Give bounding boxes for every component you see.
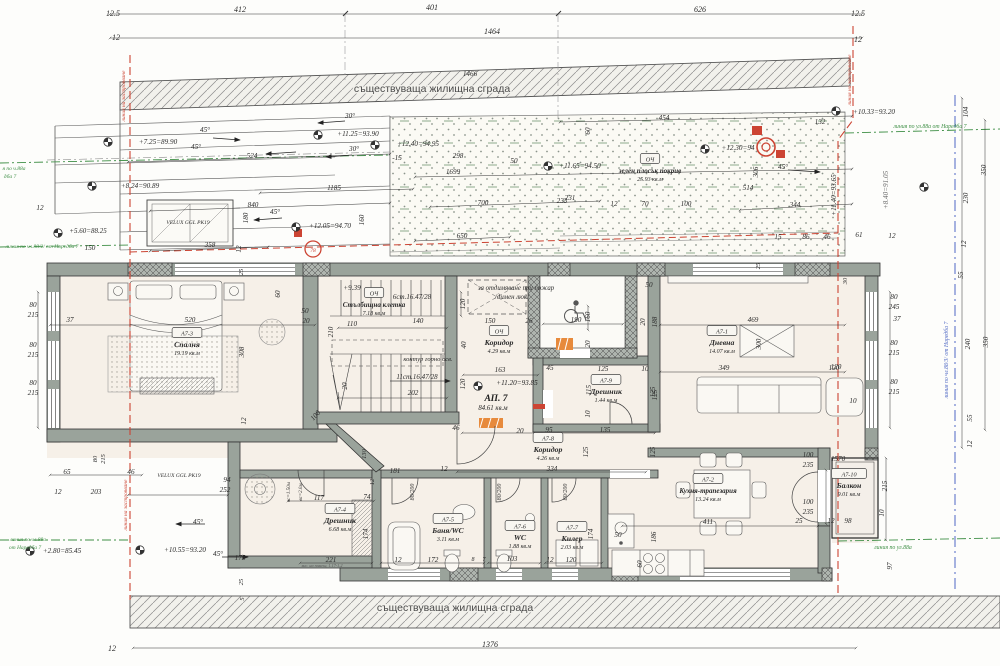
existing-building-bottom-label: съществуваща жилищна сграда	[377, 602, 533, 614]
dim-label: 175	[235, 554, 246, 562]
dim-label: 30°	[344, 112, 355, 120]
regulation-line-label: дба 7	[4, 173, 17, 180]
room-label-А7-1: А7-1Дневна14.07 кв.м	[707, 326, 737, 356]
dim-label: 80	[890, 339, 898, 347]
dim-label: 25	[795, 517, 803, 525]
dim-label: 350	[980, 164, 988, 176]
room-area: 7.18 кв.м	[363, 311, 386, 317]
dim-label: 25	[238, 268, 245, 275]
apartment-area: 84.61 кв.м	[478, 405, 508, 412]
room-tag: А7-10	[840, 472, 857, 479]
dim-label: 215	[889, 349, 900, 357]
dim-label: 80	[890, 293, 898, 301]
dim-label: 1185	[327, 184, 341, 192]
dim-label: +9.39	[343, 284, 361, 292]
dim-label: 10	[584, 410, 592, 418]
dim-label: 60	[636, 560, 644, 568]
dim-label: 125	[598, 365, 609, 373]
dim-label: 215	[889, 388, 900, 396]
room-area: 25.93 кв.м	[637, 177, 663, 183]
dim-label: 10	[849, 397, 857, 405]
dim-label: 12	[546, 556, 554, 564]
plan-svg: съществуваща жилищна сграда съществуваща…	[0, 0, 1000, 666]
dim-label: 80/200	[497, 484, 503, 501]
room-name: WC	[514, 533, 527, 542]
dim-label: 1464	[484, 27, 500, 36]
dim-label: 514	[743, 184, 754, 192]
dim-label: 308	[238, 346, 246, 358]
dim-label: 181	[390, 467, 401, 475]
dim-label: 55	[957, 271, 965, 279]
dim-label: 15	[774, 233, 782, 241]
level-marker-icon	[371, 141, 379, 149]
level-marker-icon	[54, 229, 62, 237]
dim-label: 12	[235, 245, 243, 253]
regulation-line-label: линия по чл.88/2/ от Наредба 7	[5, 243, 79, 250]
dim-label: 80	[29, 301, 37, 309]
dim-label: +2.80=85.45	[43, 547, 82, 555]
regulation-line-label: я по ч.88а	[1, 166, 25, 172]
dim-label: 203	[91, 488, 102, 496]
dim-label: 50	[510, 157, 518, 165]
dim-label: 40	[460, 341, 468, 349]
dim-label: 186	[650, 531, 658, 542]
dim-label: 110	[347, 320, 358, 328]
dim-label: 45°	[193, 518, 203, 526]
dim-label: 215	[100, 453, 107, 464]
room-area: 14.07 кв.м	[709, 348, 735, 355]
dim-label: 350	[982, 336, 990, 348]
dim-label: 215	[28, 311, 39, 319]
room-area: 1.88 кв.м	[509, 544, 532, 550]
dim-label: 125	[649, 386, 657, 397]
dim-label: 30°	[348, 145, 359, 153]
dim-label: 12	[240, 417, 248, 425]
dim-label: 1376	[482, 640, 498, 649]
room-tag: ОЧ	[646, 157, 655, 164]
dim-label: +11.25=93.90	[337, 130, 379, 138]
dim-label: 344	[789, 201, 801, 209]
dim-label: 230	[962, 192, 970, 203]
room-name: Стълбищна клетка	[343, 301, 406, 309]
skylight-label: VELUX GGL PK19	[157, 473, 201, 479]
dim-label: 50	[301, 307, 309, 315]
dim-label: вис. на помещ. 1.17-1.2	[302, 563, 343, 568]
room-area: 2.03 кв.м	[561, 545, 584, 551]
dim-label: 240	[964, 338, 972, 349]
room-name: Килер	[561, 534, 583, 543]
dim-label: 74	[363, 493, 371, 501]
dim-label: 150	[485, 317, 496, 325]
dim-label: 80	[92, 455, 99, 462]
room-label-А7-3: А7-3Спалня19.19 кв.м	[172, 328, 202, 358]
dim-label: +5.60=88.25	[69, 227, 107, 235]
room-tag: А7-6	[513, 524, 527, 531]
room-tag: А7-5	[441, 517, 454, 524]
dim-label: 20	[639, 318, 647, 326]
room-name: Спалня	[174, 340, 200, 349]
dim-label: 188	[651, 316, 659, 327]
level-marker-icon	[474, 382, 482, 390]
elevator-shaft-wall	[625, 276, 637, 358]
regulation-line-label: линия по чл.88а	[9, 537, 46, 543]
dim-label: 46	[823, 233, 831, 241]
dim-label: 840	[248, 201, 259, 209]
dim-label: 12	[960, 240, 968, 248]
room-tag: А7-3	[180, 331, 193, 338]
room-label-А7-8: А7-8Коридор4.26 кв.м	[533, 433, 563, 463]
dim-label: 50	[645, 281, 653, 289]
dim-label: 46	[452, 424, 460, 432]
dim-label: вс=2.0м	[299, 483, 304, 501]
dim-label: 60	[584, 127, 592, 135]
room-tag: А7-8	[541, 436, 555, 443]
dim-label: 12.5	[851, 9, 865, 18]
room-tag: А7-9	[599, 378, 612, 385]
room-label-А7-7: А7-7Килер2.03 кв.м	[557, 522, 587, 552]
dim-label: 215	[28, 351, 39, 359]
dim-label: 12	[610, 200, 618, 208]
dim-label: 1466	[463, 70, 478, 78]
dim-label: 172	[428, 556, 439, 564]
dim-label: 163	[495, 366, 506, 374]
dim-label: 100	[803, 498, 814, 506]
regulation-line-label: линия по ул.88а	[873, 545, 912, 551]
dim-label: 60	[274, 290, 282, 298]
dim-label: 12	[394, 556, 402, 564]
dim-label: 120	[829, 364, 840, 372]
room-name: Дневна	[709, 338, 735, 347]
room-area: 19.19 кв.м	[174, 351, 200, 357]
level-marker-icon	[314, 131, 322, 139]
room-area: 9.01 кв.м	[838, 492, 861, 498]
dim-label: 401	[426, 3, 438, 12]
dim-label: 100	[681, 200, 692, 208]
dim-label: 454	[659, 114, 670, 122]
room-tag: А7-2	[701, 477, 714, 484]
dim-label: 120	[459, 298, 467, 309]
dim-label: 37	[65, 316, 74, 324]
room-name: Дрешник	[589, 387, 623, 396]
apartment-label: АП. 7	[484, 394, 509, 404]
dim-label: 46	[127, 468, 135, 476]
dim-label: 120	[566, 556, 577, 564]
dim-label: 12	[108, 644, 116, 653]
dim-label: 117	[314, 494, 325, 502]
dim-label: 174	[587, 528, 595, 539]
dim-label: 45°	[213, 550, 223, 558]
dim-label: 12	[827, 517, 835, 525]
dim-label: 520	[185, 316, 196, 324]
existing-building-top-label: съществуваща жилищна сграда	[354, 83, 510, 95]
dim-label: +12.30=94	[721, 144, 754, 152]
existing-building-bottom	[130, 596, 1000, 628]
dim-label: 298	[453, 152, 464, 160]
dim-label: 12	[854, 35, 862, 44]
level-marker-icon	[292, 223, 300, 231]
dim-label: 469	[748, 316, 759, 324]
building-line-label: линия на застрояване	[847, 54, 853, 107]
dim-label: 45°	[778, 163, 788, 171]
roof-marker-label: 78	[310, 248, 316, 254]
room-area: 1.44 кв.м	[595, 397, 618, 404]
room-name: зелен плосък покрив	[618, 167, 681, 175]
dim-label: 215	[28, 389, 39, 397]
dim-label: 160	[358, 214, 366, 225]
dim-label: 30	[842, 277, 849, 285]
dim-label: 210	[327, 326, 335, 337]
dim-label: контур горно осв.	[403, 356, 453, 363]
dim-label: 94	[223, 476, 231, 484]
dim-label: 50	[614, 531, 622, 539]
dim-label: 150	[85, 244, 96, 252]
dim-label: 1570	[831, 455, 846, 463]
dim-label: вс=1.50м	[287, 481, 292, 501]
dim-label: 12	[440, 465, 448, 473]
dim-label: 103	[507, 555, 518, 563]
dim-label: 20	[302, 317, 310, 325]
dim-label: -15	[392, 154, 402, 162]
dim-label: 98	[844, 517, 852, 525]
dim-label: 12	[888, 232, 896, 240]
dim-label: 45°	[270, 208, 280, 216]
room-tag: ОЧ	[370, 291, 379, 298]
room-tag: ОЧ	[495, 329, 504, 336]
dim-label: 626	[694, 5, 706, 14]
dim-label: 12	[36, 204, 44, 212]
dim-label: 300	[755, 338, 763, 350]
dim-label: 104	[962, 106, 970, 117]
regulation-line-label: линия по чл.88/3/ от Наредба 7	[943, 321, 950, 400]
building-line-label: линия на застрояване	[121, 70, 127, 123]
dim-label: 160	[584, 311, 592, 322]
dim-label: 130	[361, 448, 368, 459]
dim-label: 650	[457, 232, 468, 240]
dim-label: 215	[881, 480, 889, 491]
room-area: 6.68 кв.м	[329, 527, 352, 533]
dim-label: 412	[234, 5, 246, 14]
dim-label: 358	[204, 241, 216, 249]
level-marker-icon	[920, 183, 928, 191]
dim-label: +10.33=93.20	[853, 108, 895, 116]
dim-label: 12	[966, 440, 974, 448]
dim-label: 306	[752, 166, 760, 178]
room-area: 4.26 кв.м	[537, 455, 560, 462]
dim-label: 174	[362, 528, 370, 539]
dim-label: 65	[63, 468, 71, 476]
dim-label: +10.55=93.20	[164, 546, 206, 554]
dim-label: 80	[890, 378, 898, 386]
dim-label: +12.40=94.95	[397, 140, 439, 148]
dim-label: +8.40=91.05	[882, 170, 890, 209]
room-area: 13.24 кв.м	[695, 496, 721, 503]
dim-label: 120	[459, 378, 467, 389]
dim-label: 132	[815, 118, 826, 126]
room-area: 3.11 кв.м	[436, 537, 459, 543]
dim-label: 10	[878, 509, 886, 517]
dim-label: 45°	[200, 126, 210, 134]
dim-label: 20	[516, 427, 524, 435]
dim-label: 12.5	[106, 9, 120, 18]
dim-label: 334	[546, 465, 558, 473]
dim-label: 12	[54, 488, 62, 496]
room-name: Коридор	[533, 445, 563, 454]
dim-label: 26	[525, 317, 533, 325]
dim-label: 20	[584, 340, 592, 348]
dim-label: 12	[369, 478, 376, 485]
skylight-label: VELUX GGL PK19	[166, 220, 210, 226]
dim-label: 411	[703, 518, 713, 526]
dim-label: 80/200	[410, 484, 416, 501]
room-name: Дрешник	[323, 516, 357, 525]
dim-label: 10	[641, 365, 649, 373]
dim-label: 37	[892, 315, 901, 323]
dim-label: 11ст.16.47/28	[396, 373, 438, 381]
level-marker-icon	[544, 162, 552, 170]
apartment-level: +11.20=93.85	[496, 379, 538, 387]
dim-label: 80	[29, 341, 37, 349]
dim-label: 180	[242, 212, 250, 223]
balcony-door-opening	[818, 470, 830, 522]
dim-label: 190	[571, 316, 582, 324]
floor-plan-drawing: съществуваща жилищна сграда съществуваща…	[0, 0, 1000, 666]
dim-label: +11.65=94.50	[559, 162, 601, 170]
dim-label: за отдимяване при пожар	[477, 285, 555, 292]
dim-label: 45°	[191, 143, 201, 151]
armchair	[826, 378, 863, 416]
dim-label: 80/200	[563, 484, 569, 501]
dim-label: 8	[472, 557, 475, 563]
dim-label: +8.24=90.89	[121, 182, 160, 190]
dim-label: 524	[247, 152, 258, 160]
room-area: 4.29 кв.м	[488, 348, 511, 355]
dim-label: 231	[565, 194, 576, 202]
dim-label: 125	[649, 446, 657, 457]
plant	[245, 474, 275, 504]
level-marker-icon	[701, 145, 709, 153]
dim-label: 100	[803, 451, 814, 459]
level-marker-icon	[88, 182, 96, 190]
dim-label: 700	[478, 199, 489, 207]
dim-label: 349	[718, 364, 730, 372]
room-tag: А7-4	[333, 507, 346, 514]
dim-label: +12.05=94.70	[309, 222, 351, 230]
dim-label: 202	[408, 389, 419, 397]
dim-label: 235	[803, 508, 814, 516]
dim-label: 135	[600, 426, 611, 434]
level-marker-icon	[832, 107, 840, 115]
dim-label: /димен люк/	[494, 294, 530, 301]
room-tag: А7-7	[565, 525, 579, 532]
dim-label: 86	[802, 233, 810, 241]
dim-label: 252	[220, 486, 231, 494]
dim-label: 6ст.16.47/28	[393, 293, 432, 301]
room-name: Баня/WC	[431, 526, 464, 535]
regulation-line-label: от Наредба 7	[9, 544, 42, 551]
regulation-line-label: линия по ул.88а от Наредба 7	[892, 123, 967, 130]
dim-label: 245	[889, 303, 900, 311]
dim-label: 1699	[446, 168, 461, 176]
level-marker-icon	[104, 138, 112, 146]
dim-label: 80	[29, 379, 37, 387]
dim-label: +7.25=89.90	[139, 138, 178, 146]
dim-label: 55	[966, 414, 974, 422]
dresser	[140, 378, 214, 394]
dim-label: 140	[413, 317, 424, 325]
room-name: Коридор	[484, 338, 514, 347]
round-rug	[259, 319, 285, 345]
dim-label: 70	[641, 200, 649, 208]
room-name: Балкон	[836, 481, 862, 490]
dim-label: 25	[755, 262, 762, 269]
dim-label: 25	[238, 578, 245, 585]
kitchen-opening	[610, 470, 650, 478]
dim-label: 20	[341, 382, 349, 390]
dim-label: +11.40=93.65	[830, 174, 838, 216]
room-name: Кухня-трапезария	[678, 487, 737, 495]
dim-label: 12	[112, 33, 120, 42]
dim-label: 125	[582, 446, 590, 457]
dim-label: 45	[546, 364, 554, 372]
dim-label: 61	[855, 231, 862, 239]
dim-label: 97	[886, 562, 894, 570]
level-marker-icon	[136, 546, 144, 554]
building-line-label: линия на застрояване	[123, 479, 129, 532]
room-tag: А7-1	[715, 329, 728, 336]
dim-label: 235	[803, 461, 814, 469]
